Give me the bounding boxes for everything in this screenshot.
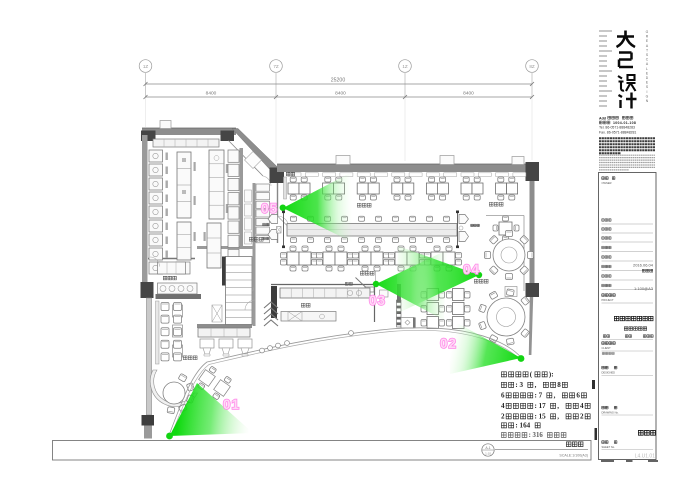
svg-text:SCALE:1/100(A3): SCALE:1/100(A3) [559, 454, 588, 458]
svg-text:SHEET No.: SHEET No. [602, 445, 616, 449]
svg-text:2: 2 [580, 413, 584, 421]
svg-text:8400: 8400 [206, 91, 217, 97]
svg-text:: 164: : 164 [515, 422, 530, 430]
svg-text:PROJECT: PROJECT [602, 298, 615, 302]
svg-text:4: 4 [501, 402, 505, 410]
svg-text:: 7: : 7 [534, 392, 542, 400]
svg-text:1Z: 1Z [402, 64, 408, 69]
svg-text:: 17: : 17 [534, 402, 546, 410]
svg-text:DRAWING No.: DRAWING No. [602, 411, 619, 415]
svg-text:L4.U1.01: L4.U1.01 [635, 454, 656, 460]
svg-text:CLIENT: CLIENT [602, 346, 612, 350]
svg-text:Fax. 86-0571-88848281: Fax. 86-0571-88848281 [599, 130, 636, 134]
svg-text:OWNER: OWNER [602, 181, 612, 185]
svg-text:: 316: : 316 [529, 432, 544, 439]
svg-text:A-1: A-1 [485, 446, 490, 450]
svg-text:G: G [646, 30, 649, 34]
svg-text:1:10: 1:10 [485, 452, 491, 456]
svg-text:8Z: 8Z [529, 64, 535, 69]
svg-text:T: T [646, 48, 648, 52]
svg-text:25200: 25200 [331, 78, 346, 84]
svg-text:,: , [557, 413, 559, 421]
svg-text:DESIGNED: DESIGNED [602, 371, 616, 375]
svg-text:1Z: 1Z [143, 64, 149, 69]
svg-text:):: ): [549, 371, 554, 379]
svg-text:7Z: 7Z [273, 64, 279, 69]
svg-text:2: 2 [501, 413, 505, 421]
svg-text:Add: Add [599, 117, 606, 121]
svg-text:: 15: : 15 [534, 413, 546, 421]
svg-text:6: 6 [576, 392, 580, 400]
svg-text:,: , [554, 392, 556, 400]
svg-text:Tel. 86-0571-88848283: Tel. 86-0571-88848283 [599, 126, 635, 130]
svg-text:I: I [647, 90, 648, 94]
svg-text:,: , [557, 402, 559, 410]
svg-text:8400: 8400 [335, 91, 346, 97]
svg-text:1:100@A3: 1:100@A3 [634, 286, 654, 291]
svg-text:G: G [646, 94, 649, 98]
svg-text:1004-01-108: 1004-01-108 [613, 121, 636, 125]
svg-text:8400: 8400 [463, 91, 474, 97]
svg-text:8: 8 [557, 381, 561, 389]
svg-text:2016.06.04: 2016.06.04 [633, 263, 654, 268]
svg-text:: 3: : 3 [515, 381, 523, 389]
svg-text:03: 03 [369, 293, 386, 308]
svg-text:L: L [646, 67, 648, 71]
svg-text:05: 05 [261, 201, 278, 216]
svg-text:,: , [535, 381, 537, 389]
svg-text:02: 02 [440, 336, 457, 351]
svg-text:01: 01 [223, 397, 240, 412]
svg-text:4: 4 [580, 402, 584, 410]
svg-text:6: 6 [501, 392, 505, 400]
svg-text:04: 04 [463, 262, 480, 277]
